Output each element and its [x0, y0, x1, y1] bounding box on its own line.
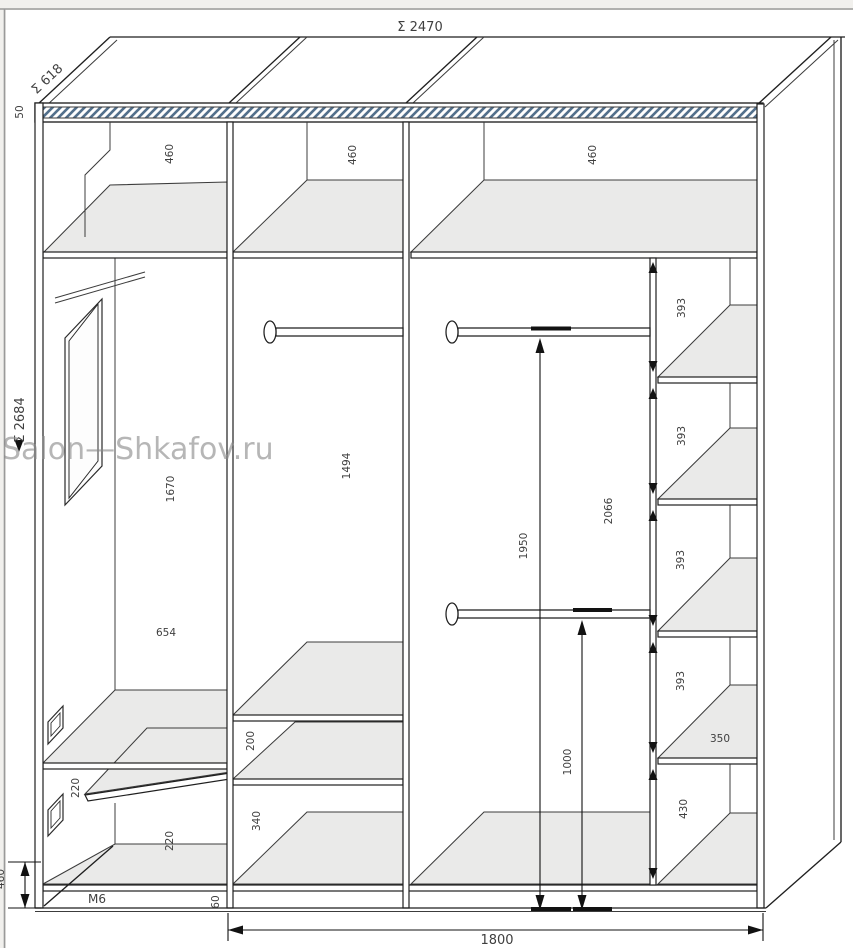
dim-460-right: 460 — [587, 145, 599, 165]
partition-right-column — [650, 258, 656, 885]
partition-1 — [227, 122, 233, 908]
watermark: Salon—Shkafov.ru — [2, 432, 274, 467]
dim-2066: 2066 — [603, 497, 615, 524]
dim-460-mid: 460 — [347, 145, 359, 165]
dim-393-1: 393 — [676, 298, 688, 318]
dim-200: 200 — [245, 731, 257, 751]
dim-1000: 1000 — [562, 749, 574, 776]
marking-m6: M6 — [88, 892, 106, 906]
wardrobe-svg: Σ 2470 Σ 618 Σ 2684 50 460 460 460 1670 … — [0, 0, 853, 948]
dim-430: 430 — [678, 799, 690, 819]
dim-1950: 1950 — [518, 533, 530, 560]
dim-top-panel-50: 50 — [14, 105, 26, 118]
dim-393-2: 393 — [676, 426, 688, 446]
dim-total-width: Σ 2470 — [397, 20, 442, 35]
dim-350: 350 — [710, 733, 730, 745]
right-side-panel — [757, 104, 764, 908]
dim-340: 340 — [251, 811, 263, 831]
floor-board — [43, 885, 757, 891]
partition-2 — [403, 122, 409, 908]
dim-1800: 1800 — [480, 933, 513, 948]
dim-654: 654 — [156, 627, 176, 639]
dim-393-4: 393 — [675, 671, 687, 691]
top-panel-hatched — [35, 103, 763, 122]
wardrobe-drawing: Σ 2470 Σ 618 Σ 2684 50 460 460 460 1670 … — [0, 0, 853, 948]
dim-1494: 1494 — [341, 452, 353, 479]
dim-220-lower: 220 — [164, 831, 176, 851]
dim-60: 60 — [210, 895, 222, 908]
left-side-panel — [35, 103, 43, 908]
dim-460-left: 460 — [164, 144, 176, 164]
dim-1670: 1670 — [165, 476, 177, 503]
dim-220-upper: 220 — [70, 778, 82, 798]
dim-393-3: 393 — [675, 550, 687, 570]
dim-left-edge-partial: 460 — [0, 869, 7, 889]
